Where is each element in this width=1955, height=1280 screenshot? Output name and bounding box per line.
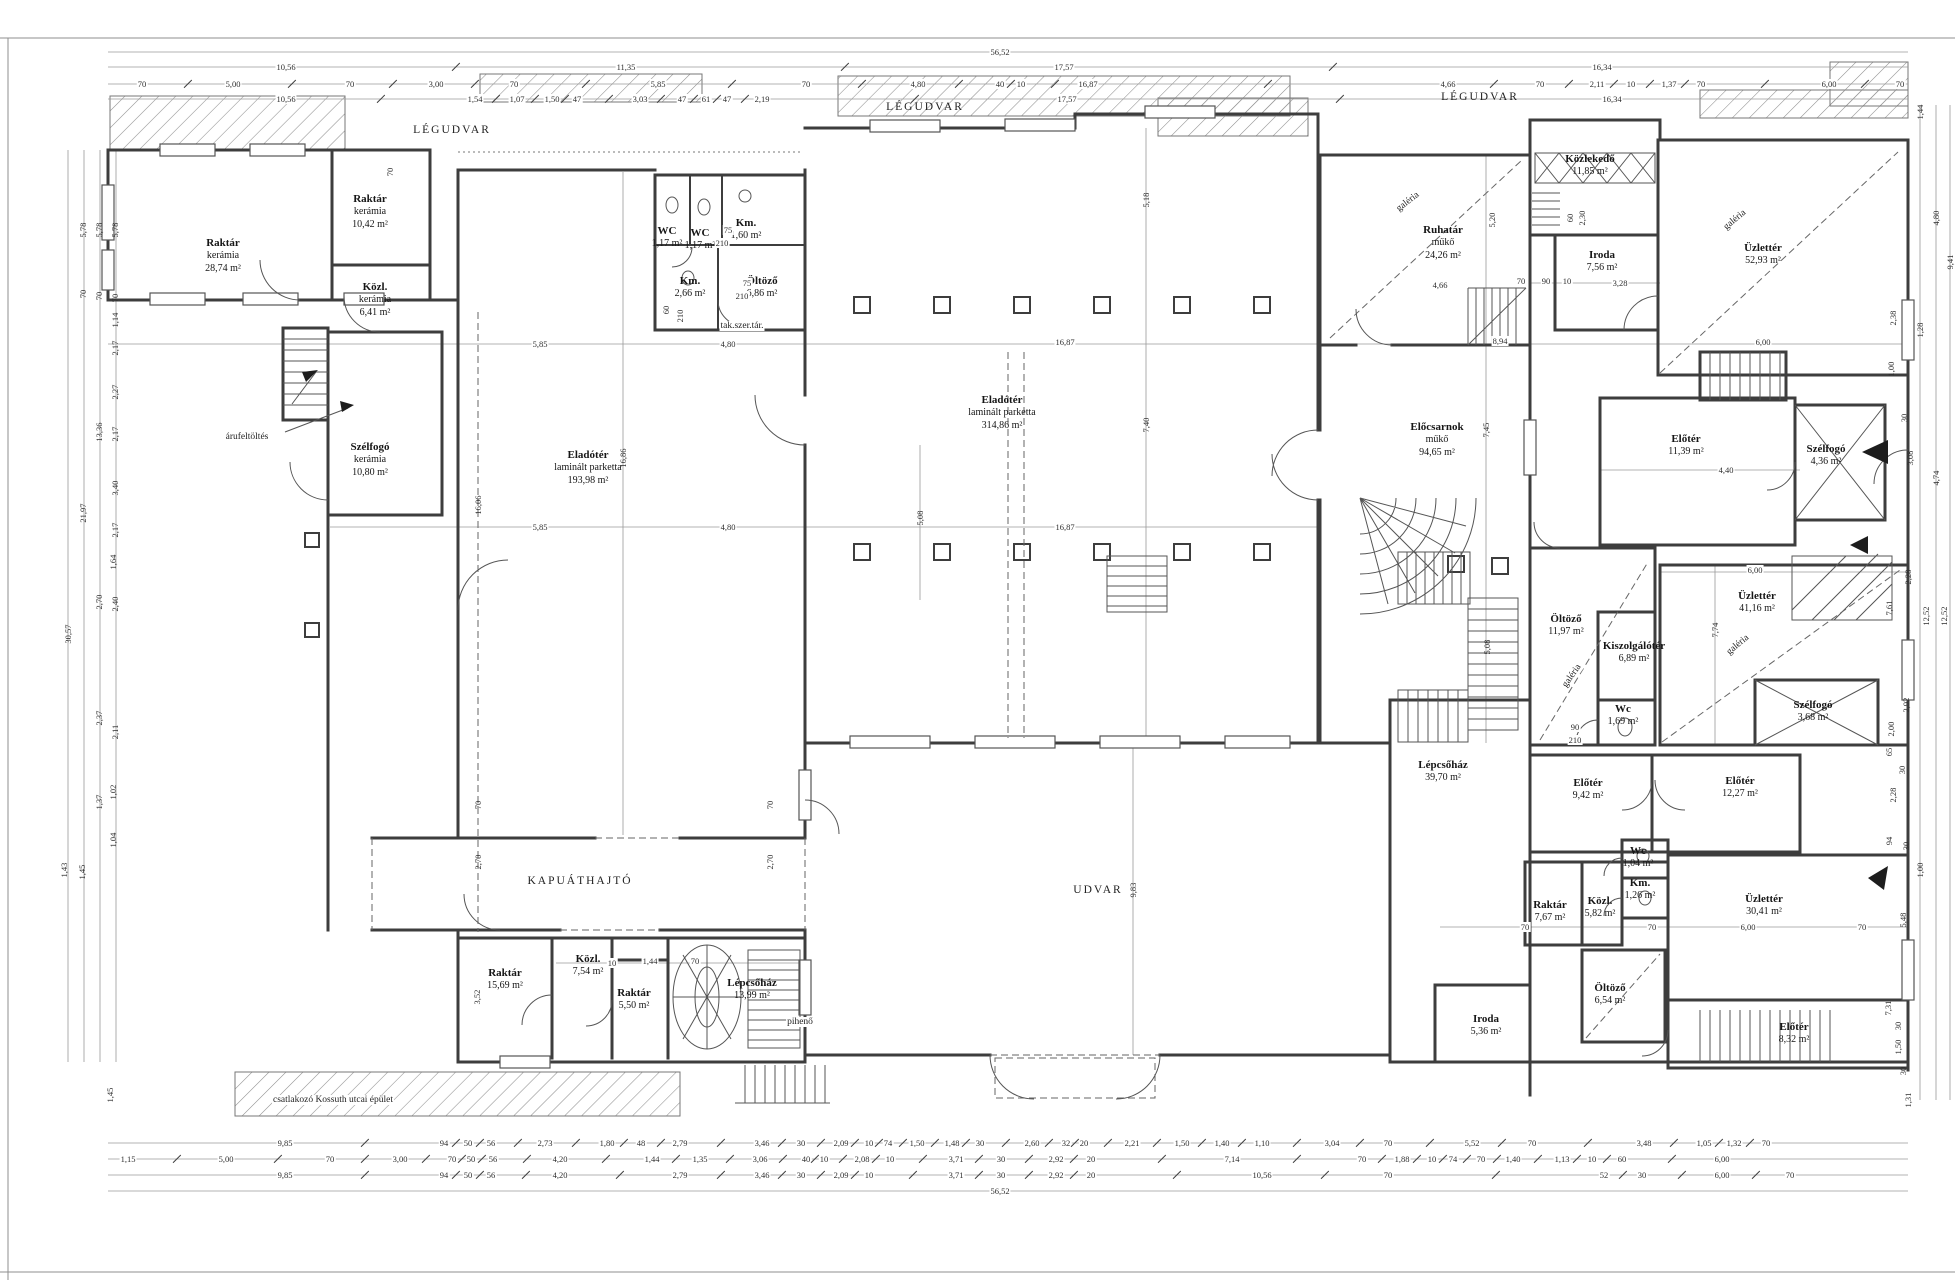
dimension-label: 56 xyxy=(486,1138,497,1148)
dimension-label: 1,15 xyxy=(120,1154,137,1164)
room-label: Km.1,26 m² xyxy=(1625,877,1656,903)
dimension-label: 1,13 xyxy=(1554,1154,1571,1164)
dimension-tick xyxy=(717,1139,726,1148)
dimension-label: 70 xyxy=(94,291,104,302)
dimension-label: 2,40 xyxy=(110,596,120,613)
dimension-tick xyxy=(274,1155,283,1164)
room-label: Közlekedő11,85 m² xyxy=(1565,153,1615,179)
dimension-label: 1,00 xyxy=(1886,361,1896,378)
room-label: Öltöző11,97 m² xyxy=(1548,613,1583,639)
dimension-label: 30 xyxy=(1901,841,1911,852)
dimension-label: 3,46 xyxy=(754,1138,771,1148)
dimension-tick xyxy=(389,80,398,89)
dimension-tick xyxy=(1860,80,1869,89)
dimension-label: 40 xyxy=(995,79,1006,89)
dimension-label: 1,48 xyxy=(944,1138,961,1148)
dimension-label: 4,74 xyxy=(1931,470,1941,487)
dimension-label: 5,52 xyxy=(1464,1138,1481,1148)
dimension-tick xyxy=(1533,1155,1542,1164)
dimension-label: 6,00 xyxy=(1714,1170,1731,1180)
room-label: Eladótérlaminált parketta314,86 m² xyxy=(968,394,1035,432)
dimension-tick xyxy=(183,80,192,89)
dimension-label: 70 xyxy=(690,956,701,966)
dimension-label: 2,79 xyxy=(672,1170,689,1180)
dimension-label: 70 xyxy=(1647,922,1658,932)
dimension-tick xyxy=(858,80,867,89)
dimension-label: 7,61 xyxy=(1884,600,1894,617)
dimension-label: 2,11 xyxy=(110,724,120,741)
dimension-label: 5,08 xyxy=(1482,639,1492,656)
dimension-label: 2,19 xyxy=(754,94,771,104)
dimension-label: 7,45 xyxy=(1481,422,1491,439)
dimension-label: 70 xyxy=(1761,1138,1772,1148)
dimension-label: 5,48 xyxy=(1898,912,1908,929)
dimension-label: 4,66 xyxy=(1432,280,1449,290)
dimension-tick xyxy=(1172,1171,1181,1180)
dimension-label: 16,87 xyxy=(1077,79,1098,89)
dimension-label: 210 xyxy=(1568,735,1583,745)
dimension-label: 10,56 xyxy=(1251,1170,1272,1180)
dimension-label: 5,78 xyxy=(78,222,88,239)
dimension-tick xyxy=(287,80,296,89)
room-label: Raktárkerámia10,42 m² xyxy=(352,193,388,231)
dimension-tick xyxy=(1746,1139,1755,1148)
dimension-tick xyxy=(530,95,539,104)
dimension-label: 2,21 xyxy=(1124,1138,1141,1148)
room-label: WC1,17 m² xyxy=(685,227,716,253)
dimension-tick xyxy=(851,1171,860,1180)
dimension-label: 1,64 xyxy=(108,554,118,571)
dimension-tick xyxy=(376,95,385,104)
dimension-tick xyxy=(1678,1171,1687,1180)
dimension-tick xyxy=(1715,1139,1724,1148)
room-label: Kiszolgálótér6,89 m² xyxy=(1603,640,1665,666)
dimension-label: 56,52 xyxy=(989,1186,1010,1196)
dimension-label: 30 xyxy=(975,1138,986,1148)
dimension-tick xyxy=(1426,1139,1435,1148)
dimension-tick xyxy=(616,1171,625,1180)
room-label: Öltöző6,54 m² xyxy=(1594,982,1625,1008)
room-label: Üzlettér52,93 m² xyxy=(1744,242,1782,268)
dimension-label: 2,70 xyxy=(94,594,104,611)
dimension-label: 3,00 xyxy=(392,1154,409,1164)
dimension-tick xyxy=(1378,1155,1387,1164)
dimension-tick xyxy=(1670,1139,1679,1148)
dimension-tick xyxy=(475,1171,484,1180)
dimension-label: 1,44 xyxy=(642,956,659,966)
room-label: Közl.5,82 m² xyxy=(1585,895,1616,921)
zone-label: LÉGUDVAR xyxy=(886,101,964,113)
dimension-label: 70 xyxy=(1696,79,1707,89)
dimension-tick xyxy=(1610,80,1619,89)
dimension-tick xyxy=(1573,1155,1582,1164)
dimension-tick xyxy=(726,1155,735,1164)
dimension-label: 8,94 xyxy=(1492,336,1509,346)
dimension-tick xyxy=(522,1155,531,1164)
dimension-label: 60 xyxy=(1617,1154,1628,1164)
dimension-label: 2,28 xyxy=(1888,787,1898,804)
dimension-tick xyxy=(1668,1155,1677,1164)
dimension-tick xyxy=(1492,1171,1501,1180)
dimension-label: 9,83 xyxy=(1128,882,1138,899)
dimension-tick xyxy=(521,1171,530,1180)
annotation-label: galéria xyxy=(1724,632,1752,658)
dimension-label: 61 xyxy=(701,94,712,104)
dimension-label: 1,40 xyxy=(1505,1154,1522,1164)
dimension-label: 3,71 xyxy=(948,1154,965,1164)
zone-label: LÉGUDVAR xyxy=(413,124,491,136)
dimension-tick xyxy=(1329,63,1338,72)
dimension-label: 10,56 xyxy=(275,94,296,104)
dimension-tick xyxy=(1413,1155,1422,1164)
dimension-tick xyxy=(452,1139,461,1148)
dimension-label: 7,74 xyxy=(1710,622,1720,639)
dimension-label: 5,85 xyxy=(650,79,667,89)
room-label: Közl.kerámia6,41 m² xyxy=(359,281,391,319)
dimension-label: 2,11 xyxy=(1589,79,1606,89)
dimension-label: 30 xyxy=(796,1138,807,1148)
dimension-label: 6,00 xyxy=(1714,1154,1731,1164)
dimension-label: 9,85 xyxy=(277,1170,294,1180)
dimension-label: 70 xyxy=(801,79,812,89)
dimension-label: 70 xyxy=(1520,922,1531,932)
dimension-tick xyxy=(717,1171,726,1180)
dimension-label: 2,92 xyxy=(1048,1170,1065,1180)
dimension-label: 2,09 xyxy=(833,1170,850,1180)
dimension-label: 1,44 xyxy=(1915,104,1925,121)
annotation-label: árufeltöltés xyxy=(225,432,270,442)
dimension-label: 70 xyxy=(1785,1170,1796,1180)
dimension-label: 1,10 xyxy=(1254,1138,1271,1148)
dimension-label: 10 xyxy=(1427,1154,1438,1164)
dimension-label: 30 xyxy=(1893,1021,1903,1032)
dimension-tick xyxy=(1335,95,1344,104)
dimension-label: 6,00 xyxy=(1740,922,1757,932)
annotation-label: galéria xyxy=(1560,662,1584,691)
dimension-label: 94 xyxy=(1884,836,1894,847)
dimension-label: 50 xyxy=(463,1170,474,1180)
dimension-tick xyxy=(1498,1139,1507,1148)
dimension-label: 3,28 xyxy=(1612,278,1629,288)
dimension-label: 1,44 xyxy=(644,1154,661,1164)
dimension-label: 75 xyxy=(742,278,753,288)
dimension-label: 1,02 xyxy=(108,784,118,801)
dimension-label: 47 xyxy=(722,94,733,104)
dimension-label: 9,85 xyxy=(277,1138,294,1148)
dimension-label: 17,57 xyxy=(1053,62,1074,72)
room-label: WC1,17 m² xyxy=(652,225,683,251)
dimension-tick xyxy=(1050,80,1059,89)
dimension-label: 5,18 xyxy=(1141,192,1151,209)
dimension-label: 20 xyxy=(1086,1154,1097,1164)
dimension-tick xyxy=(514,1139,523,1148)
dimension-label: 1,31 xyxy=(1903,1092,1913,1109)
dimension-tick xyxy=(728,80,737,89)
annotation-label: pihenő xyxy=(786,1017,814,1027)
dimension-label: 1,54 xyxy=(467,94,484,104)
dimension-tick xyxy=(817,1171,826,1180)
dimension-label: 3,04 xyxy=(1324,1138,1341,1148)
dimension-tick xyxy=(1752,1171,1761,1180)
dimension-label: 2,09 xyxy=(833,1138,850,1148)
dimension-label: 2,38 xyxy=(1888,310,1898,327)
dimension-tick xyxy=(452,1171,461,1180)
dimension-label: 30 xyxy=(996,1154,1007,1164)
dimension-label: 4,40 xyxy=(1718,465,1735,475)
dimension-label: 6,00 xyxy=(1747,565,1764,575)
dimension-tick xyxy=(360,1139,369,1148)
dimension-label: 6,00 xyxy=(1755,337,1772,347)
dimension-tick xyxy=(1293,1155,1302,1164)
dimension-label: 74 xyxy=(1448,1154,1459,1164)
dimension-label: 2,30 xyxy=(1577,210,1587,227)
dimension-tick xyxy=(851,1139,860,1148)
dimension-label: 5,20 xyxy=(1487,212,1497,229)
dimension-label: 210 xyxy=(735,291,750,301)
dimension-label: 70 xyxy=(345,79,356,89)
dimension-label: 4,80 xyxy=(910,79,927,89)
dimension-label: 10 xyxy=(1626,79,1637,89)
dimension-tick xyxy=(1490,80,1499,89)
dimension-tick xyxy=(1646,80,1655,89)
dimension-tick xyxy=(872,1155,881,1164)
dimension-tick xyxy=(1238,1139,1247,1148)
dimension-tick xyxy=(560,95,569,104)
dimension-label: 10 xyxy=(1562,276,1573,286)
dimension-label: 70 xyxy=(1895,79,1906,89)
room-label: Iroda7,56 m² xyxy=(1587,249,1618,275)
dimension-label: 10 xyxy=(864,1170,875,1180)
dimension-label: 1,88 xyxy=(1394,1154,1411,1164)
dimension-tick xyxy=(657,95,666,104)
dimension-tick xyxy=(712,95,721,104)
dimension-label: 12,52 xyxy=(1939,605,1949,626)
dimension-label: 47 xyxy=(572,94,583,104)
dimension-label: 5,08 xyxy=(915,510,925,527)
dimension-label: 5,78 xyxy=(94,222,104,239)
room-label: Ruhatárműkő24,26 m² xyxy=(1423,224,1463,262)
dimension-label: 3,03 xyxy=(632,94,649,104)
dimension-tick xyxy=(1356,1139,1365,1148)
dimension-label: 70 xyxy=(1857,922,1868,932)
dimension-label: 70 xyxy=(509,79,520,89)
dimension-label: 6,00 xyxy=(1821,79,1838,89)
room-label: Közl.7,54 m² xyxy=(573,953,604,979)
dimension-label: 7,40 xyxy=(1141,417,1151,434)
dimension-label: 1,50 xyxy=(544,94,561,104)
dimension-label: 1,00 xyxy=(1915,862,1925,879)
dimension-label: 30 xyxy=(1637,1170,1648,1180)
dimension-tick xyxy=(572,1139,581,1148)
dimension-label: 70 xyxy=(447,1154,458,1164)
dimension-label: 2,92 xyxy=(1048,1154,1065,1164)
dimension-label: 1,04 xyxy=(108,832,118,849)
dimension-tick xyxy=(839,1155,848,1164)
dimension-tick xyxy=(582,80,591,89)
dimension-label: 10 xyxy=(819,1154,830,1164)
room-label: Üzlettér30,41 m² xyxy=(1745,893,1783,919)
dimension-label: 10 xyxy=(1016,79,1027,89)
dimension-label: 70 xyxy=(1476,1154,1487,1164)
dimension-label: 70 xyxy=(1357,1154,1368,1164)
dimension-label: 40 xyxy=(801,1154,812,1164)
dimension-label: 5,78 xyxy=(110,222,120,239)
dimension-label: 2,17 xyxy=(110,426,120,443)
dimension-label: 2,70 xyxy=(473,854,483,871)
dimension-label: 47 xyxy=(677,94,688,104)
dimension-label: 16,34 xyxy=(1601,94,1622,104)
dimension-label: 90 xyxy=(1570,722,1581,732)
dimension-label: 70 xyxy=(765,800,775,811)
dimension-label: 3,40 xyxy=(110,480,120,497)
dimension-label: 94 xyxy=(439,1170,450,1180)
dimension-label: 4,80 xyxy=(1931,210,1941,227)
dimension-tick xyxy=(690,95,699,104)
dimension-label: 210 xyxy=(715,238,730,248)
dimension-label: 4,80 xyxy=(720,339,737,349)
dimension-label: 90 xyxy=(1541,276,1552,286)
dimension-label: 5,00 xyxy=(225,79,242,89)
dimension-label: 70 xyxy=(110,293,120,304)
room-label: Lépcsőház13,99 m² xyxy=(727,977,777,1003)
dimension-tick xyxy=(898,1139,907,1148)
dimension-tick xyxy=(1069,1171,1078,1180)
dimension-label: 1,45 xyxy=(105,1087,115,1104)
dimension-label: 21,97 xyxy=(78,502,88,523)
room-label: Előtér8,32 m² xyxy=(1779,1021,1810,1047)
dimension-tick xyxy=(1198,1139,1207,1148)
dimension-label: 2,28 xyxy=(1903,569,1913,586)
dimension-tick xyxy=(475,1139,484,1148)
dimension-tick xyxy=(1564,80,1573,89)
dimension-label: 20 xyxy=(1086,1170,1097,1180)
dimension-tick xyxy=(1002,1139,1011,1148)
dimension-tick xyxy=(602,1155,611,1164)
dimension-tick xyxy=(620,1139,629,1148)
dimension-tick xyxy=(1069,1155,1078,1164)
dimension-label: 30 xyxy=(796,1170,807,1180)
room-label: Előtér12,27 m² xyxy=(1722,775,1758,801)
dimension-tick xyxy=(1293,1139,1302,1148)
dimension-label: 1,37 xyxy=(94,794,104,811)
dimension-tick xyxy=(919,1155,928,1164)
dimension-label: 2,17 xyxy=(110,340,120,357)
dimension-label: 7,14 xyxy=(1224,1154,1241,1164)
dimension-label: 75 xyxy=(723,225,734,235)
dimension-label: 30 xyxy=(996,1170,1007,1180)
dimension-tick xyxy=(1463,1155,1472,1164)
dimension-label: 10 xyxy=(885,1154,896,1164)
dimension-tick xyxy=(1104,1139,1113,1148)
dimension-label: 70 xyxy=(385,167,395,178)
dimension-tick xyxy=(740,95,749,104)
dimension-label: 1,05 xyxy=(1696,1138,1713,1148)
dimension-label: 70 xyxy=(1535,79,1546,89)
dimension-tick xyxy=(962,1139,971,1148)
dimension-label: 74 xyxy=(883,1138,894,1148)
room-label: Előtér11,39 m² xyxy=(1668,433,1703,459)
dimension-label: 56 xyxy=(488,1154,499,1164)
dimension-label: 30 xyxy=(1897,765,1907,776)
dimension-tick xyxy=(361,1155,370,1164)
dimension-tick xyxy=(1157,1155,1166,1164)
room-label: Lépcsőház39,70 m² xyxy=(1418,759,1468,785)
dimension-label: 5,00 xyxy=(218,1154,235,1164)
dimension-label: 2,92 xyxy=(1901,697,1911,714)
dimension-label: 3,00 xyxy=(428,79,445,89)
dimension-tick xyxy=(908,1171,917,1180)
dimension-tick xyxy=(1321,1171,1330,1180)
dimension-label: 16,87 xyxy=(1054,337,1075,347)
dimension-label: 70 xyxy=(78,289,88,300)
room-label: Eladótérlaminált parketta193,98 m² xyxy=(554,449,621,487)
dimension-label: 56 xyxy=(486,1170,497,1180)
dimension-label: 10,56 xyxy=(275,62,296,72)
room-label: Szélfogó4,36 m² xyxy=(1806,443,1845,469)
dimension-tick xyxy=(656,1139,665,1148)
dimension-tick xyxy=(930,1139,939,1148)
dimension-tick xyxy=(173,1155,182,1164)
dimension-tick xyxy=(1493,1155,1502,1164)
dimension-label: 4,20 xyxy=(552,1154,569,1164)
dimension-tick xyxy=(974,1155,983,1164)
room-label: Raktár5,50 m² xyxy=(617,987,651,1013)
dimension-tick xyxy=(1024,1155,1033,1164)
dimension-label: 10 xyxy=(607,958,618,968)
dimension-tick xyxy=(777,1171,786,1180)
dimension-label: 2,37 xyxy=(94,710,104,727)
dimension-label: 16,87 xyxy=(1054,522,1075,532)
zone-label: UDVAR xyxy=(1073,884,1122,896)
annotation-label: tak.szer.tár. xyxy=(720,321,765,331)
dimension-label: 1,50 xyxy=(1893,1039,1903,1056)
dimension-label: 12,52 xyxy=(1921,605,1931,626)
dimension-tick xyxy=(1045,1139,1054,1148)
room-label: Előcsarnokműkő94,65 m² xyxy=(1410,421,1463,459)
dimension-label: 3,71 xyxy=(948,1170,965,1180)
dimension-label: 13,36 xyxy=(94,421,104,442)
dimension-label: 17,57 xyxy=(1056,94,1077,104)
dimension-tick xyxy=(1681,80,1690,89)
dimension-label: 10 xyxy=(864,1138,875,1148)
room-label: Szélfogó3,68 m² xyxy=(1793,699,1832,725)
dimension-tick xyxy=(360,1171,369,1180)
dimension-tick xyxy=(452,63,461,72)
dimension-label: 52 xyxy=(1599,1170,1610,1180)
floorplan-sheet: Raktárkerámia28,74 m²Raktárkerámia10,42 … xyxy=(0,0,1955,1280)
dimension-label: 1,80 xyxy=(599,1138,616,1148)
dimension-tick xyxy=(1264,80,1273,89)
dimension-label: 11,35 xyxy=(616,62,637,72)
dimension-label: 16,34 xyxy=(1591,62,1612,72)
dimension-tick xyxy=(492,95,501,104)
room-label: Wc1,69 m² xyxy=(1608,703,1639,729)
dimension-tick xyxy=(1438,1155,1447,1164)
dimension-label: 60 xyxy=(1565,213,1575,224)
room-label: Szélfogókerámia10,80 m² xyxy=(350,441,389,479)
dimension-tick xyxy=(817,1139,826,1148)
dimension-label: 32 xyxy=(1061,1138,1072,1148)
dimension-label: 3,46 xyxy=(754,1170,771,1180)
room-label: Előtér9,42 m² xyxy=(1573,777,1604,803)
dimension-label: 50 xyxy=(463,1138,474,1148)
dimension-label: 20 xyxy=(1079,1138,1090,1148)
dimension-tick xyxy=(777,1139,786,1148)
dimension-label: 70 xyxy=(473,800,483,811)
dimension-tick xyxy=(1006,80,1015,89)
dimension-label: 3,48 xyxy=(1636,1138,1653,1148)
room-label: Üzlettér41,16 m² xyxy=(1738,590,1776,616)
